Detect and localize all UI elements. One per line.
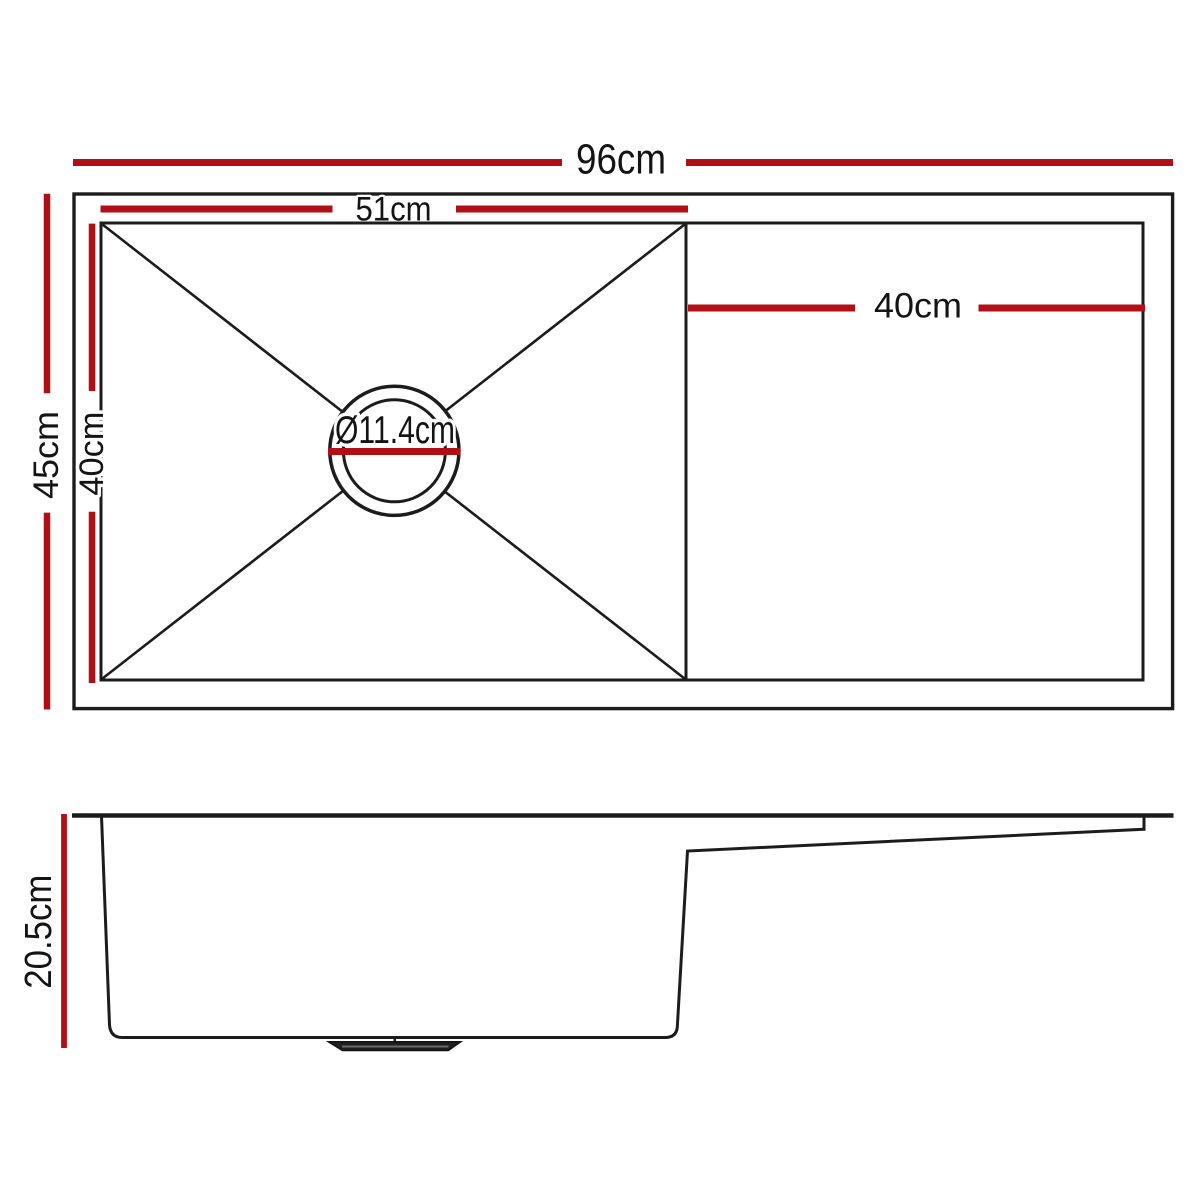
svg-text:96cm: 96cm (576, 136, 666, 184)
svg-text:40cm: 40cm (874, 286, 962, 326)
svg-text:20.5cm: 20.5cm (18, 875, 60, 989)
svg-text:45cm: 45cm (27, 411, 66, 499)
svg-text:Ø11.4cm: Ø11.4cm (335, 409, 455, 452)
svg-text:40cm: 40cm (73, 412, 111, 496)
